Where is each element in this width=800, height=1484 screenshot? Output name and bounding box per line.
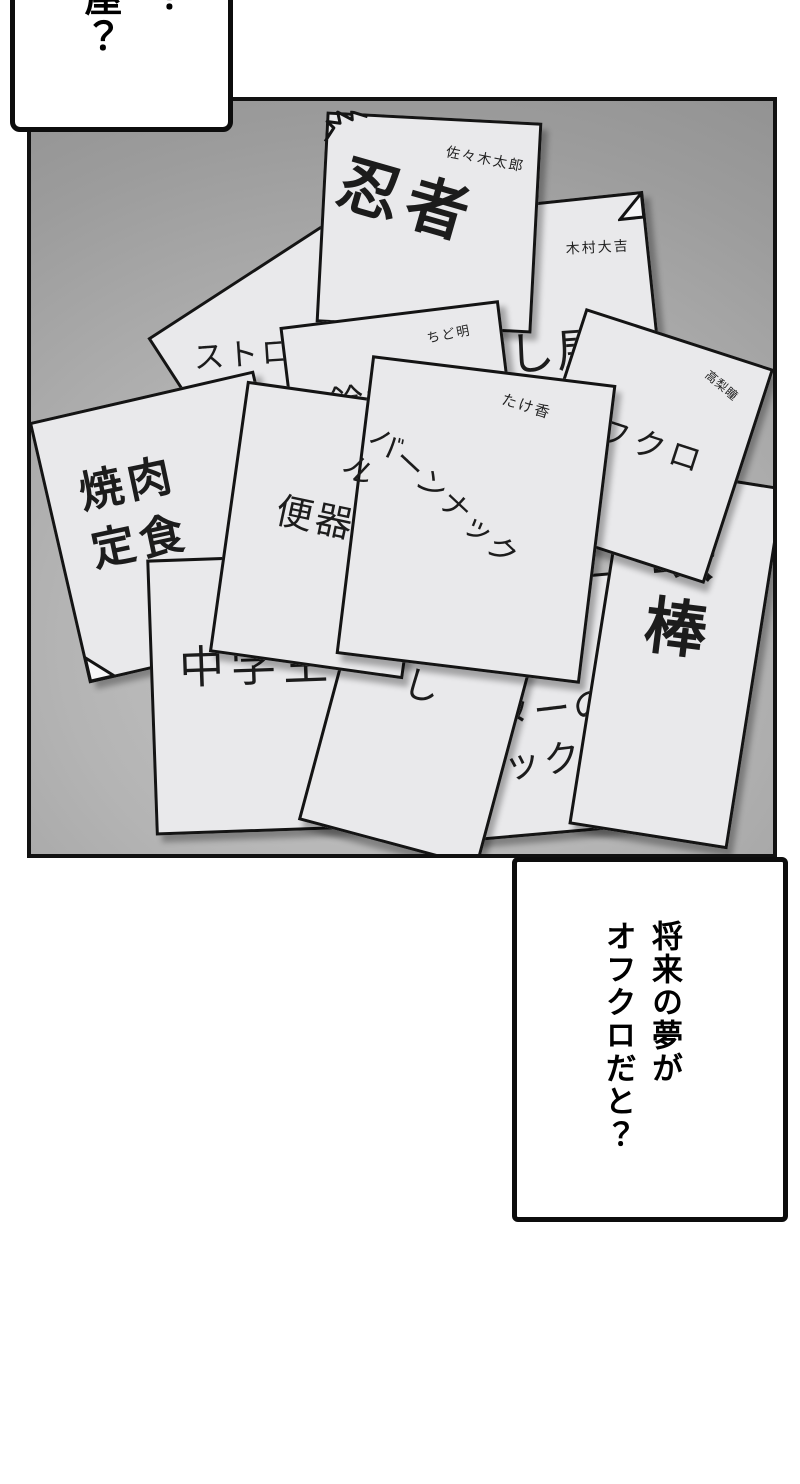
curled-corner-icon	[83, 650, 117, 684]
speech-text: 将来の夢が オフクロだと？	[594, 920, 687, 1151]
manga-panel: ストロー 木村大吉 殺し屋 佐々木太郎 忍者 焼肉 定食	[27, 97, 777, 858]
speech-bubble-bottom: 将来の夢が オフクロだと？	[512, 857, 788, 1222]
folded-corner-icon	[615, 191, 646, 222]
paper-owner-name: 木村大吉	[565, 235, 630, 258]
paper-label: バーンナックル	[334, 418, 548, 625]
manga-page: ストロー 木村大吉 殺し屋 佐々木太郎 忍者 焼肉 定食	[0, 0, 800, 1484]
torn-corner-icon	[323, 109, 371, 145]
paper-owner-name: 高梨瞳	[702, 366, 743, 404]
paper-owner-name: 佐々木太郎	[444, 141, 526, 176]
paper-label: 便器	[271, 487, 359, 551]
speech-text: ？	[137, 0, 177, 16]
speech-text: 屋？	[79, 0, 119, 54]
paper-ninja: 佐々木太郎 忍者	[316, 111, 543, 333]
speech-bubble-top: 屋？ ？	[10, 0, 233, 132]
paper-burn-knuckle: たけ香 バーンナックル	[336, 355, 617, 684]
paper-owner-name: ちど明	[425, 319, 473, 346]
paper-owner-name: たけ香	[499, 388, 554, 423]
